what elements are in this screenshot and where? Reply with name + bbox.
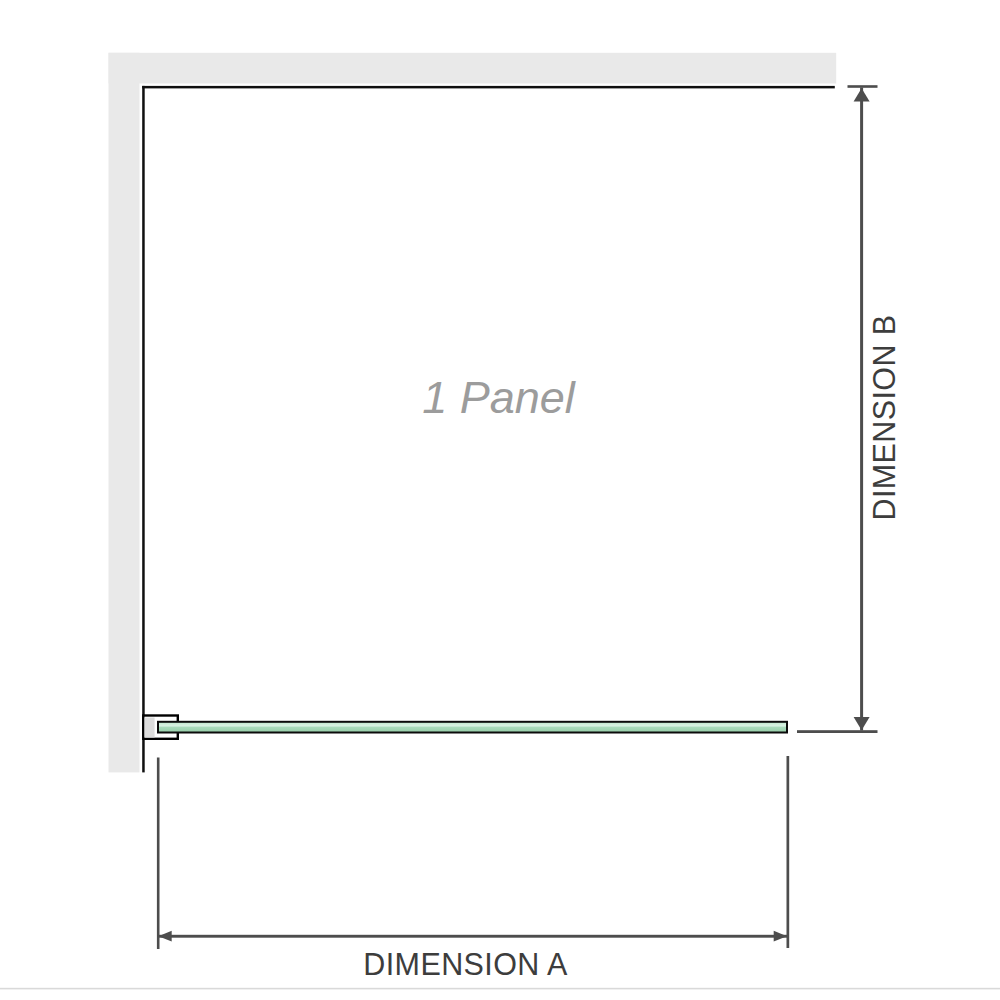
svg-text:DIMENSION A: DIMENSION A [363,947,568,981]
svg-text:1 Panel: 1 Panel [422,372,577,423]
svg-text:DIMENSION B: DIMENSION B [867,314,901,520]
